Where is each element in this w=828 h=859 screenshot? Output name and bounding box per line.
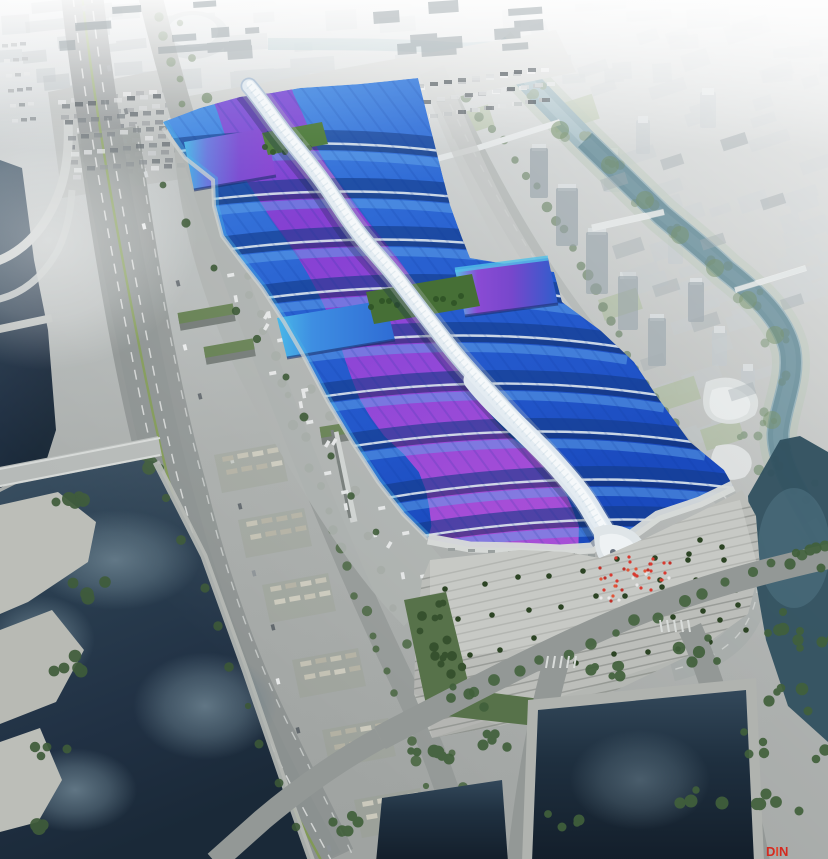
svg-text:DIN: DIN	[766, 844, 788, 859]
